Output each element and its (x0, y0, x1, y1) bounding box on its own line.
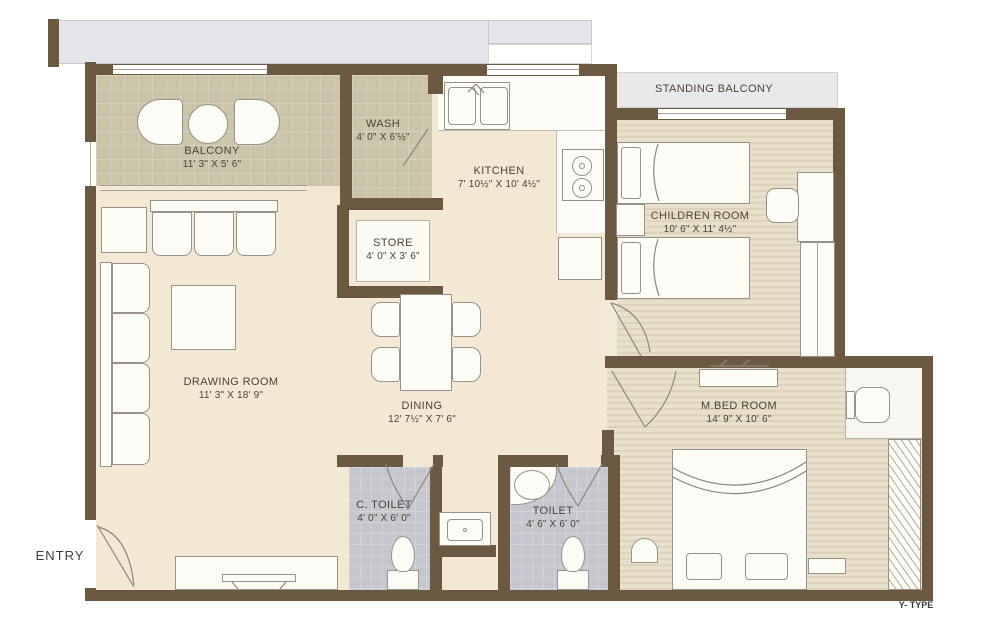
children-window (658, 109, 786, 119)
study-chair (766, 188, 799, 223)
dining-table (400, 294, 452, 391)
chajja-band-step (488, 20, 592, 44)
floor-plan: BALCONY 11' 3" X 5' 6" WASH 4' 0" X 6'½"… (0, 0, 991, 622)
wall-c-toilet-top-b (433, 455, 443, 467)
toilet-label: TOILET 4' 6" X 6' 0" (526, 505, 580, 531)
toilet-name: TOILET (526, 505, 580, 518)
wall-wash-kitchen-stub (428, 64, 443, 94)
entry-text: ENTRY (36, 548, 85, 563)
sofa-h-seat-3 (236, 212, 276, 256)
m-bed-room-dims: 14' 9" X 10' 6" (701, 413, 777, 426)
standing-balcony-name: STANDING BALCONY (655, 83, 773, 96)
wall-master-left-stub (602, 430, 614, 467)
entry-label: ENTRY (36, 549, 85, 562)
children-bed-2-pillow (621, 242, 641, 294)
wall-master-right (922, 356, 933, 601)
master-nightstand-left (631, 538, 658, 563)
sofa-h-seat-1 (152, 212, 192, 256)
wall-mid-horizontal (605, 356, 933, 368)
store-dims: 4' 0" X 3' 6" (366, 250, 420, 263)
dining-chair-1 (371, 302, 400, 337)
store-label: STORE 4' 0" X 3' 6" (366, 237, 420, 263)
kitchen-sink-bowl-1 (448, 87, 476, 125)
wall-basin-stub (433, 545, 496, 557)
master-nightstand-right (808, 558, 846, 574)
toilet-wc-tank (557, 570, 589, 590)
balcony-chair-left (137, 99, 183, 145)
balcony-side-window-line (90, 142, 91, 186)
kitchen-window-line (487, 69, 579, 70)
master-chair (855, 387, 890, 423)
standing-balcony-label: STANDING BALCONY (655, 83, 773, 96)
drawing-room-dims: 11' 3" X 18' 9" (184, 389, 279, 402)
store-name: STORE (366, 237, 420, 250)
drawing-room-name: DRAWING ROOM (184, 376, 279, 389)
stove-burner-1-dot (579, 163, 585, 169)
wall-toilet-right (608, 455, 620, 590)
balcony-chair-right (234, 99, 280, 145)
wash-label: WASH 4' 0" X 6'½" (356, 118, 409, 144)
balcony-table (188, 104, 228, 144)
sofa-h-back (150, 200, 278, 212)
c-toilet-door-gap (403, 455, 433, 467)
wall-toilet-top-a (498, 455, 568, 467)
dresser (699, 369, 778, 387)
master-pillow-1 (686, 553, 722, 580)
chajja-end-cap (48, 19, 59, 67)
toilet-door-gap (568, 455, 601, 467)
children-room-dims: 10' 6" X 11' 4½" (651, 223, 750, 236)
toilet-wc-bowl (561, 536, 585, 572)
balcony-label: BALCONY 11' 3" X 5' 6" (183, 145, 242, 171)
dining-chair-4 (452, 347, 481, 382)
coffee-table (171, 285, 236, 350)
kitchen-dims: 7' 10½" X 10' 4½" (458, 178, 540, 191)
kitchen-sink-bowl-2 (480, 87, 508, 125)
wall-c-toilet-top-a (337, 455, 403, 467)
chajja-band (58, 20, 490, 64)
sofa-l-seat-1 (112, 263, 150, 313)
master-chair-side-table (846, 391, 855, 419)
chajja-ledge (488, 44, 592, 64)
children-nightstand (616, 204, 645, 236)
dining-chair-2 (371, 347, 400, 382)
m-bed-room-label: M.BED ROOM 14' 9" X 10' 6" (701, 400, 777, 426)
kitchen-label: KITCHEN 7' 10½" X 10' 4½" (458, 165, 540, 191)
balcony-dims: 11' 3" X 5' 6" (183, 158, 242, 171)
sofa-l-seat-4 (112, 413, 150, 465)
plan-type-text: Y- TYPE (899, 600, 934, 610)
wall-bottom (85, 590, 933, 601)
wash-name: WASH (356, 118, 409, 131)
tv-console (175, 556, 338, 590)
c-toilet-wc-bowl (391, 536, 415, 572)
children-window-line (658, 113, 786, 114)
dining-label: DINING 12' 7½" X 7' 6" (388, 400, 456, 426)
wall-toilet-left (498, 467, 510, 590)
c-toilet-name: C. TOILET (356, 499, 412, 512)
side-table (101, 207, 147, 253)
m-bed-room-name: M.BED ROOM (701, 400, 777, 413)
stove-burner-2-dot (579, 185, 585, 191)
drawing-room-label: DRAWING ROOM 11' 3" X 18' 9" (184, 376, 279, 402)
c-toilet-dims: 4' 0" X 6' 0" (356, 512, 412, 525)
toilet-dims: 4' 6" X 6' 0" (526, 518, 580, 531)
dining-dims: 12' 7½" X 7' 6" (388, 413, 456, 426)
children-room-name: CHILDREN ROOM (651, 210, 750, 223)
c-toilet-label: C. TOILET 4' 0" X 6' 0" (356, 499, 412, 525)
kitchen-window (487, 65, 579, 75)
wall-kitchen-children (605, 64, 617, 304)
balcony-name: BALCONY (183, 145, 242, 158)
toilet-basin (514, 470, 550, 500)
study-desk (797, 172, 834, 242)
fridge (558, 237, 602, 280)
balcony-window-line (113, 69, 267, 70)
wash-dims: 4' 0" X 6'½" (356, 131, 409, 144)
master-wardrobe (888, 439, 921, 590)
c-toilet-wc-tank (387, 570, 419, 590)
plan-type-label: Y- TYPE (899, 599, 934, 612)
wall-balcony-wash (340, 64, 352, 210)
children-bed-1-pillow (621, 147, 641, 199)
children-wardrobe-divider (817, 243, 818, 356)
dining-name: DINING (388, 400, 456, 413)
master-pillow-2 (745, 553, 788, 580)
sofa-l-back (100, 262, 112, 467)
children-room-label: CHILDREN ROOM 10' 6" X 11' 4½" (651, 210, 750, 236)
balcony-sliding-window (100, 185, 307, 191)
sofa-h-seat-2 (194, 212, 234, 256)
children-door-gap (605, 300, 617, 356)
wall-wash-bottom (340, 198, 443, 210)
entry-door-gap (85, 520, 96, 588)
dining-chair-3 (452, 302, 481, 337)
kitchen-name: KITCHEN (458, 165, 540, 178)
sofa-l-seat-3 (112, 363, 150, 413)
wall-store-left (337, 205, 349, 298)
tv (222, 574, 296, 582)
sofa-l-seat-2 (112, 313, 150, 363)
passage-basin-drain (463, 528, 467, 532)
